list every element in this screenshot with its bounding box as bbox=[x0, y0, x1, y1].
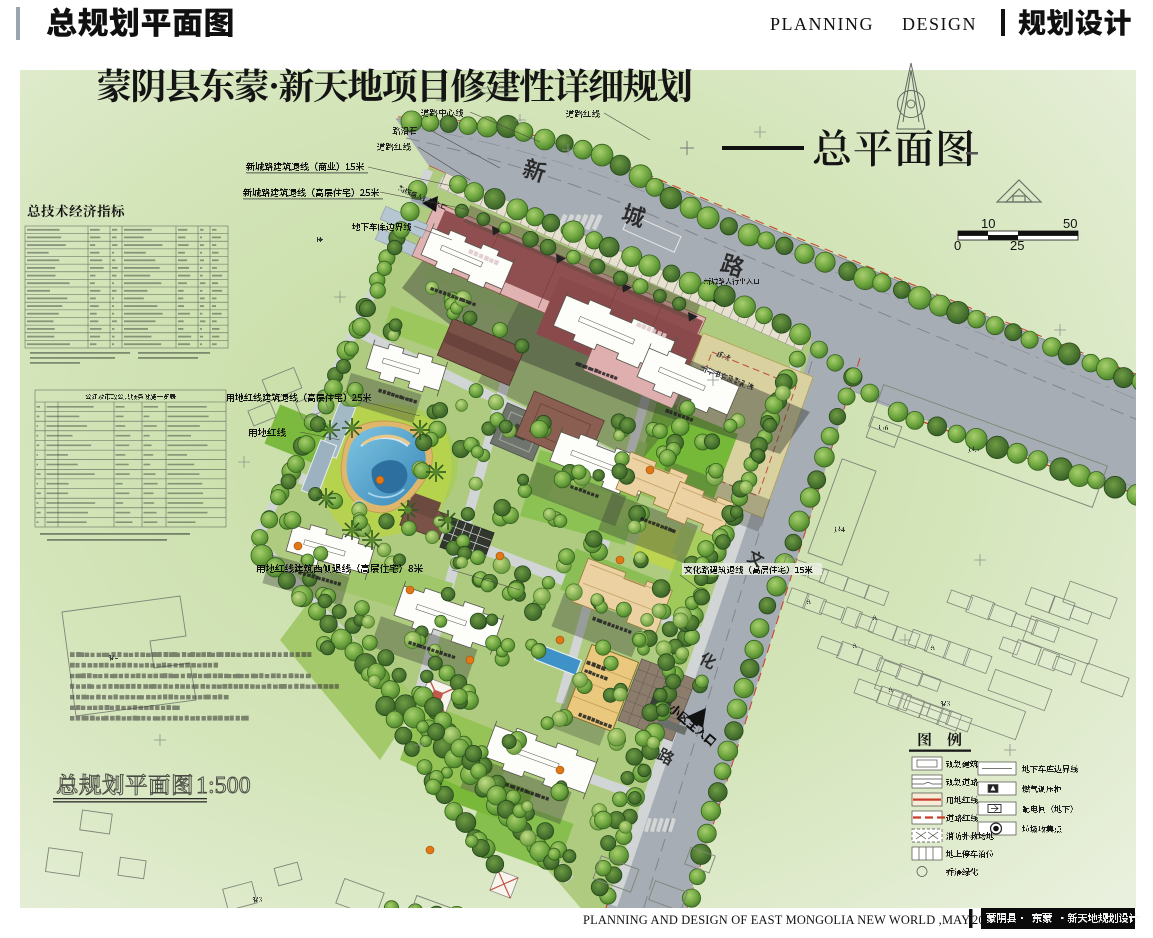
svg-text:DESIGN: DESIGN bbox=[902, 14, 977, 34]
svg-text:1:500: 1:500 bbox=[196, 773, 251, 799]
svg-text:PLANNING: PLANNING bbox=[770, 14, 874, 34]
svg-text:PLANNING AND DESIGN OF EAST MO: PLANNING AND DESIGN OF EAST MONGOLIA NEW… bbox=[583, 913, 998, 927]
svg-text:10: 10 bbox=[981, 216, 995, 231]
svg-text:0: 0 bbox=[954, 238, 961, 253]
svg-text:25: 25 bbox=[1010, 238, 1024, 253]
svg-text:50: 50 bbox=[1063, 216, 1077, 231]
